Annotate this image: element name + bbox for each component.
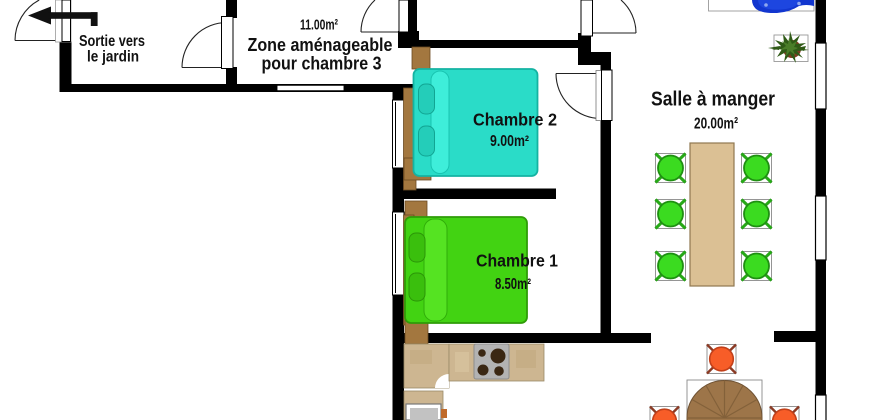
svg-text:Chambre 1: Chambre 1 (476, 251, 558, 271)
svg-text:Sortie vers: Sortie vers (79, 33, 145, 50)
svg-text:9.00m²: 9.00m² (490, 133, 529, 150)
svg-text:20.00m²: 20.00m² (694, 116, 738, 133)
svg-text:Chambre 2: Chambre 2 (473, 110, 557, 130)
svg-text:8.50m²: 8.50m² (495, 276, 531, 293)
svg-text:pour chambre 3: pour chambre 3 (262, 54, 382, 74)
svg-text:Salle à manger: Salle à manger (651, 88, 775, 111)
svg-text:11.00m²: 11.00m² (300, 17, 338, 34)
svg-text:Zone aménageable: Zone aménageable (248, 35, 393, 55)
svg-text:le jardin: le jardin (87, 49, 139, 66)
